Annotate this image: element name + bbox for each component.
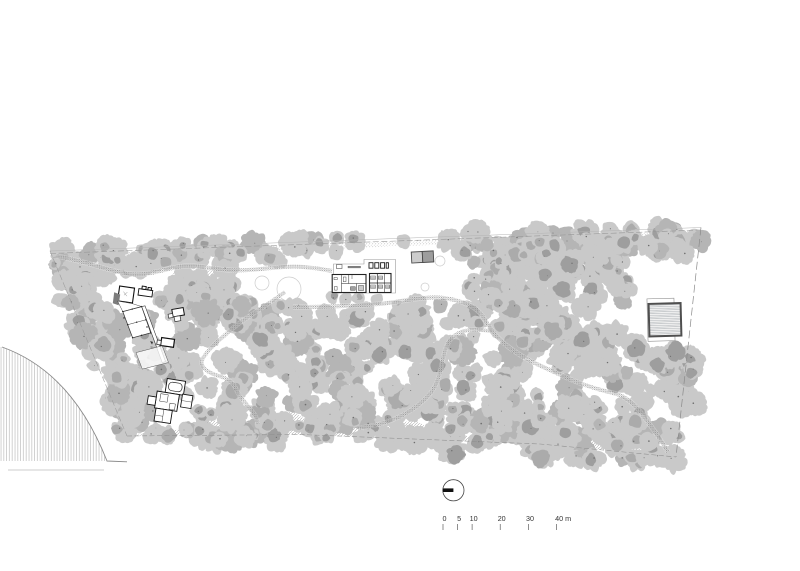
svg-text:10: 10 — [470, 514, 478, 523]
svg-text:30: 30 — [526, 514, 534, 523]
svg-text:0: 0 — [443, 514, 447, 523]
svg-text:20: 20 — [498, 514, 506, 523]
svg-text:5: 5 — [457, 514, 461, 523]
svg-text:40 m: 40 m — [555, 514, 571, 523]
